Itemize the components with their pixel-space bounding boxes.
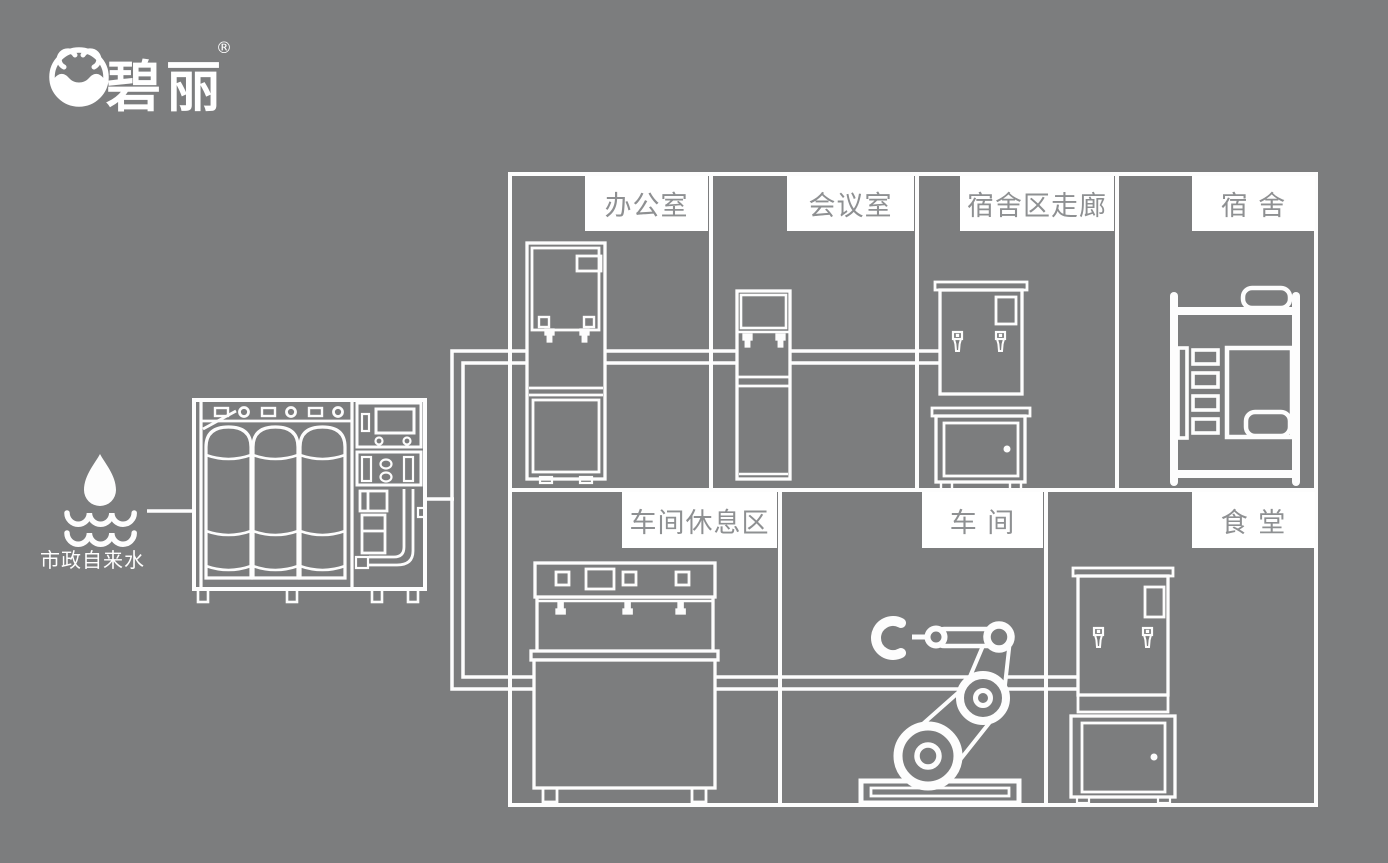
top-pillow xyxy=(1243,288,1290,308)
robot-mid-joint xyxy=(960,675,1006,721)
dorm-corridor-water-boiler xyxy=(932,282,1030,490)
robot-base-joint xyxy=(898,726,958,786)
room-label-workshop-rest-area: 车间休息区 xyxy=(622,492,777,548)
robot-elbow-joint xyxy=(987,625,1011,649)
room-label-office: 办公室 xyxy=(585,176,708,231)
ro-water-treatment-machine xyxy=(194,400,425,602)
registered-trademark: ® xyxy=(216,38,232,57)
ladder-rail xyxy=(1178,348,1187,438)
room-label-text: 车间休息区 xyxy=(630,501,770,540)
room-label-text: 办公室 xyxy=(605,184,689,223)
rest-area-water-dispenser xyxy=(531,563,718,802)
room-label-text: 会议室 xyxy=(809,184,893,223)
room-label-text: 车 间 xyxy=(950,501,1016,540)
diagram-canvas: 碧丽 ® 市政自来水 办公室 会议室 宿舍区走廊 宿 舍 车间休息区 车 间 食… xyxy=(0,0,1388,863)
robot-wrist-joint xyxy=(928,629,945,646)
room-label-text: 宿舍区走廊 xyxy=(967,184,1107,223)
bunk-bed xyxy=(1174,288,1296,482)
office-water-dispenser xyxy=(527,243,605,483)
ladder-rungs xyxy=(1193,350,1218,433)
room-label-dormitory: 宿 舍 xyxy=(1192,176,1315,231)
water-bowl-logo-icon xyxy=(52,50,106,104)
canteen-water-boiler xyxy=(1071,568,1175,803)
brand-name: 碧丽 xyxy=(106,42,226,122)
line-art-layer xyxy=(0,0,1388,863)
water-drop xyxy=(84,454,116,506)
room-label-text: 食 堂 xyxy=(1221,501,1287,540)
bottom-pillow xyxy=(1246,412,1290,436)
room-label-dorm-corridor: 宿舍区走廊 xyxy=(960,176,1114,231)
room-label-workshop: 车 间 xyxy=(922,492,1043,548)
room-label-text: 宿 舍 xyxy=(1221,184,1287,223)
water-drop-waves-icon xyxy=(67,454,134,544)
robot-gripper xyxy=(876,621,901,655)
municipal-water-label: 市政自来水 xyxy=(40,544,145,573)
meeting-room-water-dispenser xyxy=(737,291,790,479)
room-label-canteen: 食 堂 xyxy=(1192,492,1315,548)
room-label-meeting-room: 会议室 xyxy=(787,176,914,231)
robot-arm xyxy=(861,621,1019,803)
